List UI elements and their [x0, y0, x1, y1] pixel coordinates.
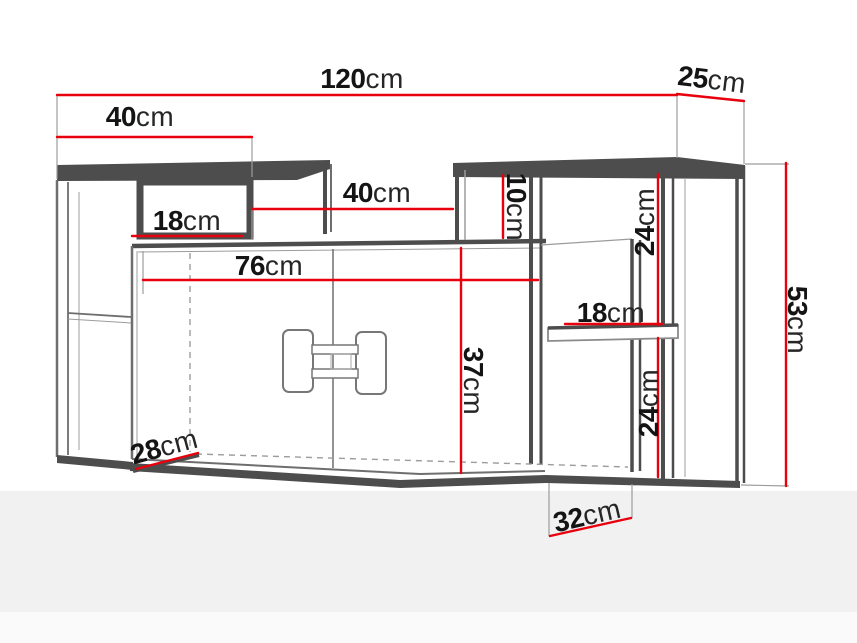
label-right-top-niche-height: 10cm [502, 173, 533, 241]
dim-value: 18 [153, 205, 183, 236]
dim-value: 120 [320, 63, 365, 94]
handle-left-plate [283, 330, 313, 392]
label-middle-niche-width: 40cm [343, 177, 411, 208]
label-left-niche-width: 18cm [153, 205, 221, 236]
dim-unit: cm [365, 63, 403, 94]
label-total-height: 53cm [783, 286, 814, 354]
label-total-width: 120cm [320, 63, 404, 94]
handle-right-plate [356, 332, 386, 394]
handle-upper-bar [312, 345, 358, 354]
label-right-shelf-width: 18cm [577, 297, 645, 328]
dim-unit: cm [706, 63, 748, 98]
label-right-upper-niche-height: 24cm [629, 188, 660, 256]
dim-value: 37 [459, 347, 490, 377]
floor-lower-strip [0, 612, 857, 643]
label-right-lower-niche-height: 24cm [633, 369, 664, 437]
dim-value: 18 [577, 297, 607, 328]
dim-unit: cm [783, 316, 814, 354]
dim-value: 53 [783, 286, 814, 316]
dim-unit: cm [265, 250, 303, 281]
dim-value: 24 [629, 225, 660, 256]
dim-unit: cm [633, 369, 664, 407]
dim-unit: cm [136, 101, 174, 132]
dim-unit: cm [629, 188, 660, 226]
floor-shadow-area [0, 491, 857, 612]
diagram-canvas: 120cm 25cm 40cm 40cm 18cm 76cm 10cm 24cm… [0, 0, 857, 643]
dim-value: 25 [676, 59, 710, 93]
label-left-shelf-width: 40cm [106, 101, 174, 132]
label-door-height: 37cm [459, 347, 490, 415]
furniture-dimension-diagram: 120cm 25cm 40cm 40cm 18cm 76cm 10cm 24cm… [0, 0, 857, 643]
dim-unit: cm [502, 203, 533, 241]
dim-unit: cm [459, 377, 490, 415]
dim-unit: cm [607, 297, 645, 328]
dim-value: 40 [343, 177, 373, 208]
handle-lower-bar [312, 369, 358, 378]
dim-unit: cm [373, 177, 411, 208]
label-door-section-width: 76cm [235, 250, 303, 281]
dim-value: 40 [106, 101, 136, 132]
dim-unit: cm [183, 205, 221, 236]
dim-value: 24 [633, 406, 664, 437]
dim-value: 10 [502, 173, 533, 203]
dim-value: 76 [235, 250, 265, 281]
